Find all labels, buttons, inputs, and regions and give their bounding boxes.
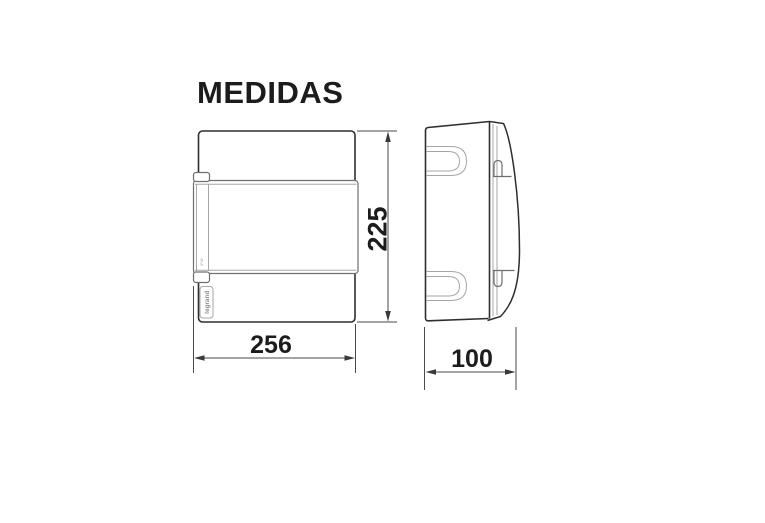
door-clip-bottom bbox=[493, 271, 515, 287]
mounting-slot-top-inner bbox=[426, 152, 460, 172]
brand-badge-label: legrand bbox=[205, 291, 211, 314]
dimension-width-label: 256 bbox=[250, 331, 292, 359]
technical-drawing: MEDIDAS IP40 legrand bbox=[0, 0, 765, 523]
front-view-door bbox=[194, 181, 359, 274]
door-clip-top bbox=[493, 161, 512, 177]
arrowhead-left-icon bbox=[194, 355, 205, 361]
dimension-height: 225 bbox=[357, 131, 397, 322]
arrowhead-up-icon bbox=[385, 132, 391, 143]
arrowhead-down-icon bbox=[385, 311, 391, 322]
side-view bbox=[426, 121, 520, 321]
dimension-height-label: 225 bbox=[363, 206, 393, 251]
hinge-top-cap bbox=[194, 173, 210, 182]
fine-print-label: IP40 bbox=[200, 258, 204, 265]
page-title: MEDIDAS bbox=[197, 75, 343, 110]
side-door-profile bbox=[488, 122, 520, 321]
dimension-depth-label: 100 bbox=[451, 345, 493, 373]
front-view: IP40 legrand bbox=[194, 131, 359, 322]
hinge-bottom-cap bbox=[194, 272, 210, 283]
mounting-slot-bottom-inner bbox=[426, 277, 460, 297]
door-clip-bottom-tab bbox=[494, 271, 502, 287]
page-background: MEDIDAS IP40 legrand bbox=[0, 0, 765, 523]
arrowhead-right-icon bbox=[345, 355, 356, 361]
arrowhead-right-icon bbox=[505, 369, 516, 375]
dimension-depth: 100 bbox=[425, 327, 517, 390]
arrowhead-left-icon bbox=[426, 369, 437, 375]
door-clip-top-tab bbox=[494, 161, 502, 177]
brand-badge: legrand bbox=[200, 287, 213, 319]
